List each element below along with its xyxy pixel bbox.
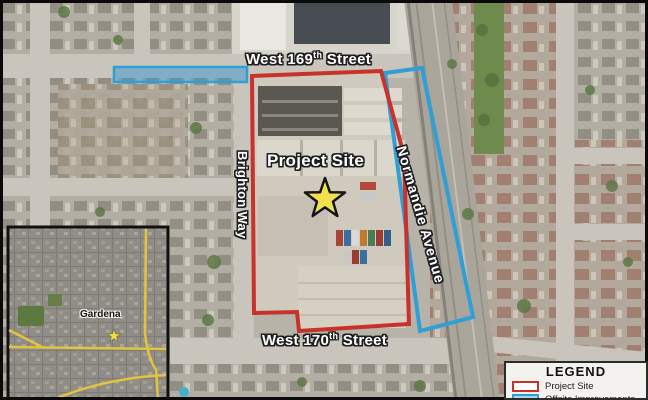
legend-item-label: Offsite Improvements bbox=[545, 394, 635, 400]
offsite-improvements-swatch bbox=[512, 394, 539, 400]
offsite-improvements-169th bbox=[114, 67, 247, 82]
inset-park-small bbox=[48, 294, 62, 306]
legend-title: LEGEND bbox=[512, 364, 640, 379]
street-169-text: West 169 bbox=[246, 51, 313, 68]
street-169-suffix: Street bbox=[322, 51, 371, 68]
project-site-swatch bbox=[512, 381, 539, 392]
aerial-map: West 169th Street West 170th Street Brig… bbox=[0, 0, 648, 400]
street-label-west-170th: West 170th Street bbox=[262, 331, 387, 349]
street-170-suffix: Street bbox=[338, 332, 387, 349]
street-170-text: West 170 bbox=[262, 332, 329, 349]
legend: LEGEND Project Site Offsite Improvements bbox=[504, 361, 648, 400]
street-label-brighton-way: Brighton Way bbox=[235, 151, 250, 239]
street-169-sup: th bbox=[313, 50, 322, 60]
street-170-sup: th bbox=[329, 331, 338, 341]
legend-item-project-site: Project Site bbox=[512, 381, 646, 392]
project-site-label: Project Site bbox=[267, 151, 364, 171]
street-label-west-169th: West 169th Street bbox=[246, 50, 371, 68]
inset-city-label: Gardena bbox=[80, 309, 121, 320]
inset-park bbox=[18, 306, 44, 326]
legend-item-offsite-improvements: Offsite Improvements bbox=[512, 394, 646, 400]
pool bbox=[179, 387, 189, 397]
legend-item-label: Project Site bbox=[545, 381, 594, 392]
